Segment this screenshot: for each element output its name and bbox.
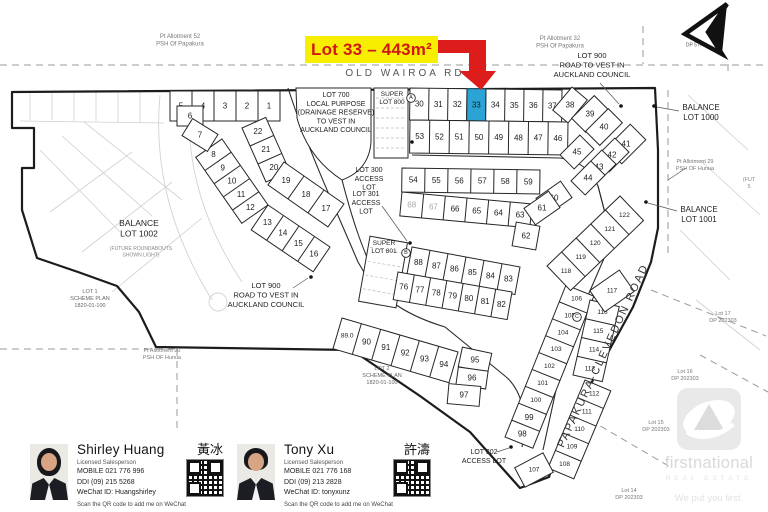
lot-number-49: 49 (494, 133, 503, 142)
lot-number-30: 30 (415, 100, 424, 109)
map-label: Lot 16DP 202303 (671, 369, 698, 382)
lot-number-53: 53 (415, 132, 424, 141)
future-lot-line (84, 122, 182, 200)
first-national-logo-icon (677, 388, 741, 450)
map-label: LOT 302ACCESS LOT (462, 449, 507, 465)
wechat-qr-code (394, 460, 430, 496)
lot-strip: 686766656463 (400, 192, 532, 228)
lot-number-21: 21 (261, 145, 270, 154)
map-label: Lot 17DP 202303 (709, 311, 736, 324)
lot-strip: 3031323334353637 (410, 88, 562, 122)
lot-number-103: 103 (551, 346, 562, 353)
marker-dot (644, 200, 648, 204)
lot-number-99: 99 (525, 413, 534, 422)
svg-text:A: A (409, 95, 413, 101)
lot-number-61: 61 (538, 204, 547, 213)
lot-number-100: 100 (530, 397, 541, 404)
lot-number-45: 45 (573, 148, 582, 157)
agent-name: Tony Xu (284, 442, 334, 457)
lot-number-47: 47 (534, 134, 543, 143)
lot-number-83: 83 (504, 275, 513, 284)
svg-text:C: C (575, 314, 579, 320)
lot-number-95: 95 (471, 356, 480, 365)
lot-number-107: 107 (529, 467, 540, 474)
lot-strip: 545556575859 (402, 168, 540, 194)
lot-number-13: 13 (263, 218, 272, 227)
lot-number-122: 122 (619, 212, 630, 219)
qr-scan-hint: Scan the QR code to add me on WeChat (77, 502, 223, 508)
lot-number-117: 117 (607, 288, 618, 295)
agent-wechat-id: WeChat ID: tonyxunz (284, 488, 384, 499)
lot-number-64: 64 (494, 208, 503, 217)
lot-number-67: 67 (429, 202, 438, 211)
marker-dot (619, 104, 623, 108)
lot-number-55: 55 (432, 176, 441, 185)
lot-number-36: 36 (529, 101, 538, 110)
lot-number-87: 87 (432, 261, 441, 270)
agent-card-shirley: Shirley Huang 黃冰 Licensed Salesperson MO… (30, 433, 223, 508)
future-lot-line (20, 121, 164, 123)
map-label: OLD WAIROA RD (345, 68, 464, 79)
agent-mobile: MOBILE 021 776 168 (284, 467, 384, 478)
lot-number-8: 8 (211, 150, 216, 159)
qr-scan-hint: Scan the QR code to add me on WeChat (284, 502, 430, 508)
lot-number-10: 10 (227, 177, 236, 186)
agent-name: Shirley Huang (77, 442, 164, 457)
agent-card-tony: Tony Xu 許濤 Licensed Salesperson MOBILE 0… (237, 433, 430, 508)
map-label: Pt Allotment 29PSH OF Hunua (676, 159, 715, 172)
lot-number-40: 40 (600, 123, 609, 132)
lot-number-66: 66 (451, 204, 460, 213)
lot-number-32: 32 (453, 100, 462, 109)
map-label: BALANCELOT 1000 (682, 103, 719, 122)
lot-number-106: 106 (571, 296, 582, 303)
lot-number-88: 88 (414, 258, 423, 267)
agent-ddi: DDI (09) 213 2828 (284, 478, 384, 489)
agent-name-cjk: 黃冰 (197, 439, 223, 458)
lot-number-93: 93 (420, 354, 429, 363)
lot-number-54: 54 (409, 176, 418, 185)
lot-number-121: 121 (604, 226, 615, 233)
lot-number-38: 38 (566, 101, 575, 110)
marker-dot (408, 241, 412, 245)
banner-arrow-icon (469, 40, 486, 73)
agent-photo (237, 444, 275, 500)
map-label: (FUT5 (743, 177, 756, 190)
agent-title: Licensed Salesperson (284, 460, 384, 466)
future-roundabout (209, 293, 227, 311)
map-label: Pt Allotment 32PSH Of Papakura (536, 36, 584, 50)
brand-subtitle: REAL ESTATE (652, 475, 766, 482)
map-label: LOT 2SCHEME PLAN1820-01-100 (362, 366, 401, 386)
future-lot-line (50, 152, 132, 212)
map-label: Pt Allotment 52PSH Of Papakura (156, 34, 204, 48)
future-lot-line (62, 136, 152, 216)
lot-number-19: 19 (282, 176, 291, 185)
lot-number-81: 81 (481, 297, 490, 306)
lot-number-78: 78 (432, 288, 441, 297)
map-label: SUPERLOT 800 (379, 91, 405, 106)
lot-number-80: 80 (464, 294, 473, 303)
lot-number-9: 9 (220, 163, 225, 172)
lot-number-76: 76 (399, 283, 408, 292)
lot-number-91: 91 (381, 343, 390, 352)
lot-number-77: 77 (416, 286, 425, 295)
future-lot-line (680, 230, 730, 280)
wechat-qr-code (187, 460, 223, 496)
banner-arrow-icon (459, 71, 496, 90)
cadastral-dashed-line (651, 290, 766, 336)
lot-number-15: 15 (294, 239, 303, 248)
lot-number-14: 14 (278, 229, 287, 238)
lot-number-31: 31 (434, 100, 443, 109)
svg-text:B: B (404, 250, 408, 256)
lot-number-101: 101 (537, 380, 548, 387)
map-label: Pt Allotment 20PSH OF Hunua (143, 348, 182, 361)
lot-number-79: 79 (448, 291, 457, 300)
lot-number-102: 102 (544, 363, 555, 370)
first-national-watermark: firstnational REAL ESTATE We put you fir… (652, 388, 766, 504)
lot-number-35: 35 (510, 101, 519, 110)
lot-number-48: 48 (514, 133, 523, 142)
marker-dot (652, 104, 656, 108)
subdivision-flyer: 3031323334353637535251504948474654555657… (0, 0, 768, 512)
lot-number-119: 119 (575, 254, 586, 261)
lot-parcel: 62 (512, 222, 540, 250)
map-label: LOT 300ACCESSLOT (355, 167, 384, 192)
lot-number-68: 68 (407, 200, 416, 209)
lot-number-34: 34 (491, 101, 500, 110)
map-label: LOT 900ROAD TO VEST INAUCKLAND COUNCIL (554, 51, 631, 79)
label-leader-line (648, 203, 677, 211)
lot-number-22: 22 (253, 127, 262, 136)
lot-number-92: 92 (401, 349, 410, 358)
lot-number-59: 59 (524, 177, 533, 186)
lot-number-104: 104 (558, 329, 569, 336)
lot-number-115: 115 (593, 328, 604, 335)
agent-title: Licensed Salesperson (77, 460, 177, 466)
lot-number-63: 63 (516, 210, 525, 219)
map-label: LOT 1SCHEME PLAN1820-01-100 (70, 289, 109, 309)
label-leader-line (600, 83, 619, 104)
lot-number-118: 118 (561, 268, 572, 275)
lot-number-39: 39 (586, 110, 595, 119)
lot-number-98: 98 (518, 430, 527, 439)
lot-number-58: 58 (501, 177, 510, 186)
lot-number-89.0: 89.0 (341, 333, 354, 340)
lot-number-86: 86 (450, 265, 459, 274)
marker-dot (309, 275, 313, 279)
lot-number-108: 108 (559, 461, 570, 468)
map-label: BALANCELOT 1001 (680, 205, 717, 224)
lot-number-46: 46 (553, 134, 562, 143)
lot-strip: 118119120121122 (547, 196, 644, 291)
lot-number-11: 11 (237, 190, 246, 199)
lot-number-56: 56 (455, 176, 464, 185)
lot-number-65: 65 (472, 206, 481, 215)
marker-dot (509, 445, 513, 449)
label-leader-line (293, 278, 308, 288)
lot-parcel: 97 (447, 384, 481, 407)
map-label: (FUTURE ROUNDABOUTSSHOWN LIGHT) (110, 246, 173, 258)
banner-arrow-icon (437, 40, 473, 53)
lot-number-52: 52 (435, 132, 444, 141)
cadastral-dashed-line (700, 355, 768, 392)
agent-ddi: DDI (09) 215 5268 (77, 478, 177, 489)
map-label: LOT 900ROAD TO VEST INAUCKLAND COUNCIL (228, 281, 305, 309)
lot-parcel: 107 (515, 453, 554, 487)
lot-number-18: 18 (302, 190, 311, 199)
lot-number-94: 94 (439, 360, 448, 369)
lot-number-84: 84 (486, 271, 495, 280)
lot-number-120: 120 (590, 240, 601, 247)
lot-number-7: 7 (198, 131, 203, 140)
lot-number-90: 90 (362, 337, 371, 346)
brand-tagline: We put you first. (652, 493, 766, 504)
lot-number-2: 2 (245, 102, 250, 111)
lot-highlight-banner: Lot 33 – 443m² (305, 36, 438, 63)
label-leader-line (497, 448, 509, 452)
lot-number-1: 1 (267, 102, 272, 111)
future-lot-line (40, 150, 120, 232)
lot-number-97: 97 (460, 391, 469, 400)
lot-strip: 5352515049484746 (410, 120, 568, 155)
map-label: LOT 301ACCESSLOT (352, 191, 381, 216)
lot-number-51: 51 (455, 133, 464, 142)
lot-number-82: 82 (497, 300, 506, 309)
lot-number-33: 33 (472, 100, 481, 109)
lot-number-85: 85 (468, 268, 477, 277)
map-label: BALANCELOT 1002 (119, 218, 159, 239)
lot-number-62: 62 (522, 232, 531, 241)
lot-number-44: 44 (584, 174, 593, 183)
lot-number-57: 57 (478, 177, 487, 186)
agents-panel: Shirley Huang 黃冰 Licensed Salesperson MO… (30, 433, 430, 508)
future-lot-line (82, 182, 172, 252)
agent-mobile: MOBILE 021 776 996 (77, 467, 177, 478)
lot-number-16: 16 (309, 250, 318, 259)
marker-dot (410, 140, 414, 144)
lot-number-50: 50 (474, 133, 483, 142)
lot-number-96: 96 (468, 374, 477, 383)
agent-photo (30, 444, 68, 500)
future-lot-line (696, 300, 760, 350)
map-label: SUPERLOT 801 (371, 240, 397, 255)
brand-name: firstnational (652, 454, 766, 473)
map-label: Lot 14DP 202303 (615, 488, 642, 501)
agent-name-cjk: 許濤 (404, 439, 430, 458)
agent-wechat-id: WeChat ID: Huangshirley (77, 488, 177, 499)
lot-number-17: 17 (322, 204, 331, 213)
lot-number-12: 12 (246, 203, 255, 212)
lot-number-3: 3 (223, 102, 228, 111)
